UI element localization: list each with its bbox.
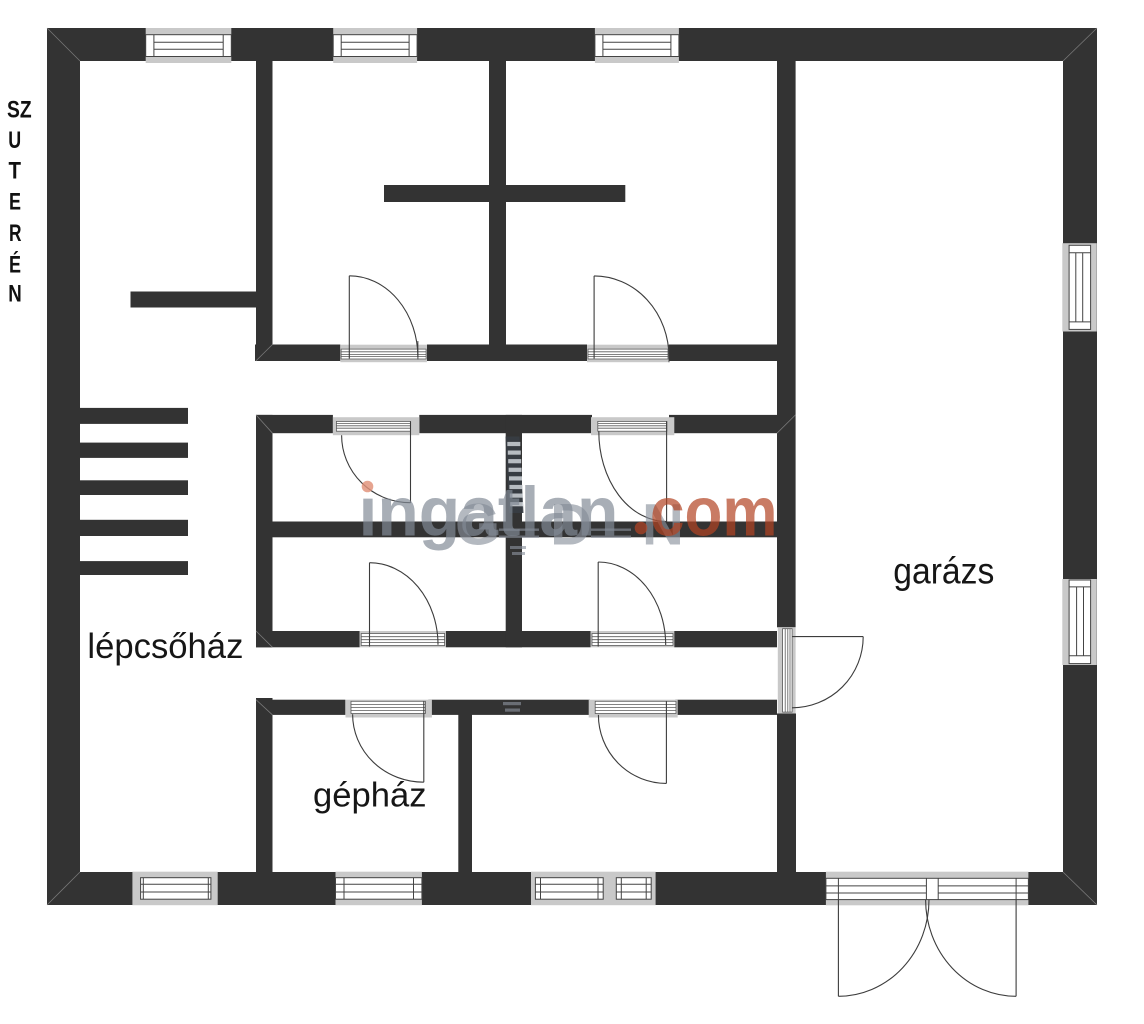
svg-text:SZ: SZ [7, 97, 32, 124]
svg-text:R: R [9, 220, 22, 247]
svg-text:E: E [9, 189, 21, 216]
svg-text:T: T [9, 157, 22, 184]
svg-text:U: U [8, 127, 21, 154]
svg-text:garázs: garázs [893, 550, 994, 592]
svg-text:com: com [650, 473, 778, 551]
svg-text:lépcsőház: lépcsőház [87, 626, 243, 666]
svg-text:É: É [9, 251, 21, 279]
svg-text:N: N [8, 281, 22, 308]
svg-text:ıngatlan: ıngatlan [359, 473, 619, 551]
svg-text:gépház: gépház [313, 777, 427, 815]
